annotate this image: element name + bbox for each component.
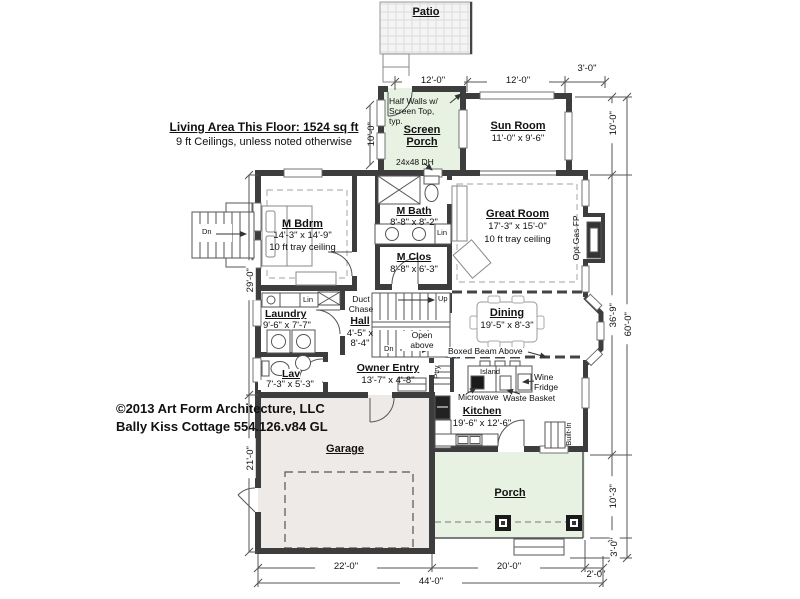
mbath-size: 8'-8" x 8'-2"	[380, 218, 448, 228]
laundry-door	[316, 310, 340, 334]
island-label: Island	[480, 368, 500, 376]
kitchen-label: Kitchen	[452, 406, 512, 418]
wine-fridge-label: Wine Fridge	[534, 373, 570, 393]
living-area-note: Living Area This Floor: 1524 sq ft	[158, 121, 370, 134]
sun-room-size: 11'-0" x 9'-6"	[470, 134, 566, 144]
porch-label: Porch	[460, 487, 560, 499]
waste-basket-unit	[500, 376, 511, 390]
lav-toilet-tank	[262, 361, 269, 376]
half-walls-note: Half Walls w/ Screen Top, typ.	[389, 97, 449, 126]
mbdrm-label: M Bdrm	[260, 218, 345, 230]
mclos-size: 8'-8" x 6'-3"	[380, 265, 448, 275]
bottom-dim-1: 22'-0"	[315, 562, 377, 572]
floor-plan: Patio Living Area This Floor: 1524 sq ft…	[0, 0, 800, 599]
copyright-line-2: Bally Kiss Cottage 554.126.v84 GL	[116, 420, 328, 434]
mbath-linen-label: Lin	[437, 229, 447, 237]
fireplace-label: Opt Gas FP	[572, 212, 582, 264]
pantry-label: Ptry	[433, 361, 441, 383]
screen-porch-height-dim: 10'-0"	[367, 115, 377, 153]
owner-entry-size: 13'-7" x 4'-8"	[338, 376, 438, 386]
microwave-label: Microwave	[458, 393, 499, 403]
laundry-size: 9'-6" x 7'-7"	[263, 321, 311, 331]
owner-entry-label: Owner Entry	[338, 363, 438, 375]
hall-size: 4'-5" x 8'-4"	[342, 329, 378, 350]
hall-label: Hall	[344, 316, 376, 328]
patio-label: Patio	[380, 6, 472, 18]
toilet-bath	[425, 185, 438, 202]
screen-porch-window-note: 24x48 DH	[396, 158, 434, 168]
lav-size: 7'-3" x 5'-3"	[258, 380, 322, 390]
open-above-label: Open above	[402, 331, 442, 351]
bottom-dim-overall: 44'-0"	[400, 577, 462, 587]
dining-size: 19'-5" x 8'-3"	[472, 321, 542, 331]
bottom-dim-2: 20'-0"	[478, 562, 540, 572]
boxed-beam-label: Boxed Beam Above	[448, 347, 523, 357]
ceilings-note: 9 ft Ceilings, unless noted otherwise	[158, 136, 370, 148]
porch-steps	[514, 539, 564, 547]
plan-drawing	[0, 0, 800, 599]
mbdrm-size: 14'-3" x 14'-9"	[260, 231, 345, 241]
top-dim-3: 3'-0"	[565, 64, 609, 74]
mclos-label: M Clos	[383, 252, 445, 264]
kitchen-size: 19'-6" x 12'-6"	[444, 419, 520, 429]
stairs-down-label: Dn	[384, 345, 394, 353]
laundry-linen-label: Lin	[303, 296, 313, 304]
great-room-ceiling: 10 ft tray ceiling	[460, 235, 575, 245]
great-room-label: Great Room	[460, 208, 575, 220]
exterior-stair-dn-label: Dn	[202, 228, 212, 236]
stairs-up-label: Up	[438, 295, 448, 303]
right-dim-4: 3'-0"	[610, 530, 620, 564]
toilet-tank	[424, 176, 439, 184]
bottom-dim-3: 2'-0"	[576, 570, 616, 580]
garage-side-door	[238, 488, 255, 512]
left-dim-2: 21'-0"	[246, 438, 256, 478]
right-dim-1: 10'-0"	[609, 103, 619, 143]
copyright-line-1: ©2013 Art Form Architecture, LLC	[116, 402, 325, 416]
right-dim-2: 36'-9"	[609, 295, 619, 335]
built-in-label: Built-In	[565, 418, 573, 450]
garage-label: Garage	[295, 443, 395, 455]
sun-room-label: Sun Room	[470, 120, 566, 132]
mbath-label: M Bath	[383, 206, 445, 218]
dining-label: Dining	[477, 307, 537, 319]
right-dim-3: 10'-3"	[609, 476, 619, 516]
microwave-unit	[471, 376, 484, 389]
built-in-cabinet	[545, 422, 565, 448]
duct-chase-label: Duct Chase	[344, 295, 378, 315]
top-dim-1: 12'-0"	[402, 76, 464, 86]
right-dim-overall: 60'-0"	[624, 304, 634, 344]
armchair	[453, 240, 491, 278]
great-room-size: 17'-3" x 15'-0"	[460, 222, 575, 232]
laundry-label: Laundry	[265, 309, 306, 321]
dresser	[296, 272, 336, 285]
mbdrm-ceiling: 10 ft tray ceiling	[260, 243, 345, 253]
left-dim-1: 29'-0"	[246, 260, 256, 300]
waste-basket-label: Waste Basket	[503, 394, 555, 404]
screen-porch-label: Screen Porch	[390, 124, 454, 148]
top-dim-2: 12'-0"	[487, 76, 549, 86]
